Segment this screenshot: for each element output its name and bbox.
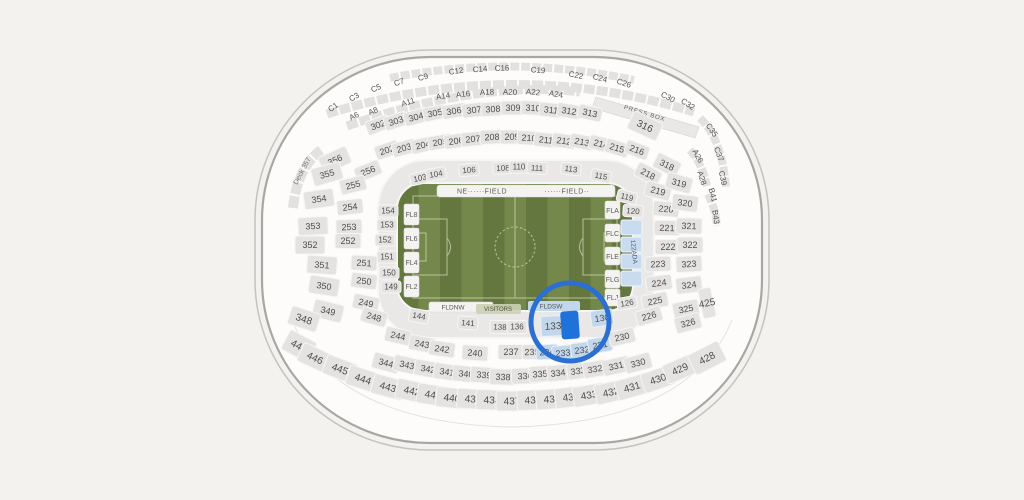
stadium-seat-map: PRESS BOX Deck 357 NE······FIELD ······F… xyxy=(0,0,1024,500)
section-352[interactable]: 352 xyxy=(295,236,325,254)
section-253[interactable]: 253 xyxy=(336,219,363,235)
section-113[interactable]: 113 xyxy=(560,162,581,176)
section-110[interactable]: 110 xyxy=(509,161,529,173)
section-141[interactable]: 141 xyxy=(458,316,479,330)
section-223[interactable]: 223 xyxy=(645,256,672,272)
section-242[interactable]: 242 xyxy=(428,340,456,358)
section-FLC: FLC xyxy=(606,231,619,238)
section-106[interactable]: 106 xyxy=(459,163,480,177)
section-154[interactable]: 154 xyxy=(378,205,398,217)
section-144[interactable]: 144 xyxy=(408,308,430,324)
section-FL4: FL4 xyxy=(405,260,417,267)
section-252[interactable]: 252 xyxy=(335,234,361,249)
section-322[interactable]: 322 xyxy=(677,237,703,253)
section-132-selected[interactable] xyxy=(561,311,580,339)
section-240[interactable]: 240 xyxy=(462,345,489,362)
field-label-top-right: ······FIELD·· xyxy=(545,189,590,196)
section-321[interactable]: 321 xyxy=(676,218,703,235)
section-FLE: FLE xyxy=(606,254,619,261)
section-FL2: FL2 xyxy=(405,284,417,291)
section-320[interactable]: 320 xyxy=(671,193,699,212)
section-237[interactable]: 237 xyxy=(498,345,524,360)
section-111[interactable]: 111 xyxy=(527,161,548,174)
section-153[interactable]: 153 xyxy=(377,219,397,231)
section-FLDNW: FLDNW xyxy=(441,305,465,312)
section-224[interactable]: 224 xyxy=(645,274,673,292)
section-120[interactable]: 120 xyxy=(623,204,644,217)
section-323[interactable]: 323 xyxy=(676,255,703,272)
section-FL8: FL8 xyxy=(405,212,417,219)
section-250[interactable]: 250 xyxy=(350,272,378,290)
section-FL6: FL6 xyxy=(405,236,417,243)
section-251[interactable]: 251 xyxy=(351,255,378,271)
section-FLDSW: FLDSW xyxy=(540,304,564,311)
section-149[interactable]: 149 xyxy=(381,281,401,293)
section-254[interactable]: 254 xyxy=(336,198,363,216)
section-353[interactable]: 353 xyxy=(298,216,329,236)
stadium-map-page: PRESS BOX Deck 357 NE······FIELD ······F… xyxy=(0,0,1024,500)
visitors-label: VISITORS xyxy=(484,307,512,313)
section-136[interactable]: 136 xyxy=(507,321,527,334)
field-right-boxes[interactable]: FLA FLC FLE FLG FLJ xyxy=(605,201,620,306)
section-151[interactable]: 151 xyxy=(377,251,397,263)
section-351[interactable]: 351 xyxy=(306,255,337,275)
section-150[interactable]: 150 xyxy=(379,267,399,279)
section-354[interactable]: 354 xyxy=(303,188,335,210)
section-FLA: FLA xyxy=(606,208,619,215)
field-label-top-left: NE······FIELD xyxy=(457,189,507,196)
section-152[interactable]: 152 xyxy=(375,234,395,246)
section-FLG: FLG xyxy=(606,277,620,284)
